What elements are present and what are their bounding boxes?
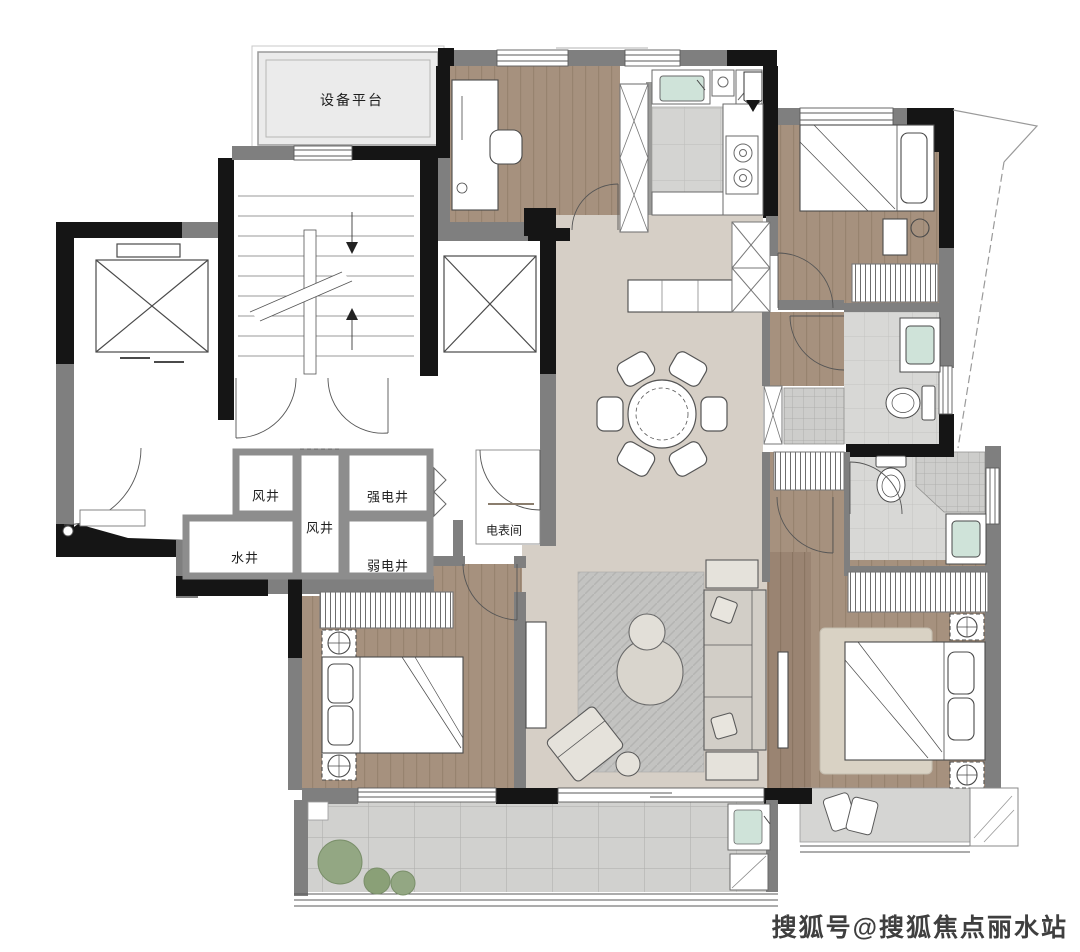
plant-small-1 xyxy=(364,868,390,894)
wardrobe xyxy=(852,264,938,302)
column-symbol xyxy=(63,526,73,536)
ottoman xyxy=(616,752,640,776)
plant-small-2 xyxy=(391,871,415,895)
bath2-window xyxy=(986,468,999,524)
bedroom-north-window xyxy=(800,108,893,125)
feature-wall xyxy=(767,552,811,798)
bath1-window xyxy=(939,366,952,414)
floorplan-drawing xyxy=(0,0,1080,952)
wardrobe-west xyxy=(320,592,453,628)
study-window xyxy=(497,50,568,66)
sideboard xyxy=(628,280,732,312)
small-appliance xyxy=(712,70,734,96)
label-wind-shaft-lower: 风井 xyxy=(306,518,334,537)
pillow-1 xyxy=(328,664,353,703)
bath1-shower xyxy=(784,388,844,444)
watermark: 搜狐号@搜狐焦点丽水站 xyxy=(772,908,1068,944)
desk-chair xyxy=(490,130,522,164)
label-wind-shaft-upper: 风井 xyxy=(252,486,280,505)
pillow xyxy=(901,133,927,203)
plant-large xyxy=(318,840,362,884)
shoe-cabinet xyxy=(80,510,145,526)
storage-cabinet xyxy=(732,222,770,312)
side-table-round xyxy=(629,614,665,650)
bay-window-glass xyxy=(800,846,970,852)
floorplan-canvas: 设备平台 风井 风井 强电井 水井 弱电井 电表间 搜狐号@搜狐焦点丽水站 xyxy=(0,0,1080,952)
pillow-4 xyxy=(948,698,974,740)
stairwell-floor xyxy=(234,160,418,374)
elevator-left xyxy=(96,244,208,362)
bath1-entry-floor xyxy=(770,312,844,386)
master-tv xyxy=(778,652,788,748)
toilet-tank xyxy=(922,386,935,420)
label-water-shaft: 水井 xyxy=(231,548,259,567)
bay-window-seat xyxy=(800,788,970,842)
label-weak-electric-shaft: 弱电井 xyxy=(367,556,409,575)
label-equipment-platform: 设备平台 xyxy=(320,90,384,110)
sofa-side-table-bottom xyxy=(706,752,758,780)
dining-table xyxy=(628,380,696,448)
laundry-sink xyxy=(734,810,762,844)
wind-shaft-lower-room xyxy=(298,452,342,576)
stove xyxy=(726,136,758,194)
wind-shaft-upper-room xyxy=(236,452,296,514)
vanity-sink xyxy=(906,326,934,364)
nightstand xyxy=(883,219,907,255)
balcony-railing xyxy=(294,894,778,906)
kitchen-counter-bottom xyxy=(652,192,723,215)
hall-closet xyxy=(620,84,648,232)
vanity2-sink xyxy=(952,521,980,557)
kitchen-window xyxy=(625,50,680,66)
stairwell-window xyxy=(294,146,352,160)
label-meter-room: 电表间 xyxy=(486,522,522,539)
wardrobe-master xyxy=(848,572,988,612)
hall-closet-2 xyxy=(774,452,844,490)
pillow-3 xyxy=(948,652,974,694)
sofa-side-table-top xyxy=(706,560,758,588)
living-sliding-door xyxy=(558,788,764,802)
label-strong-electric-shaft: 强电井 xyxy=(367,487,409,506)
hall-storage-cabinet xyxy=(764,386,782,444)
sofa xyxy=(704,560,766,780)
elevator-right xyxy=(444,256,536,352)
floor-drain xyxy=(308,802,328,820)
bedroom-west-window xyxy=(358,788,496,802)
toilet2-tank xyxy=(876,456,906,467)
ac-platform xyxy=(970,788,1018,846)
dining-chair xyxy=(597,397,623,431)
pillow-2 xyxy=(328,706,353,745)
toilet-bowl xyxy=(886,388,920,418)
dining-chair xyxy=(701,397,727,431)
tv-cabinet xyxy=(526,622,546,728)
